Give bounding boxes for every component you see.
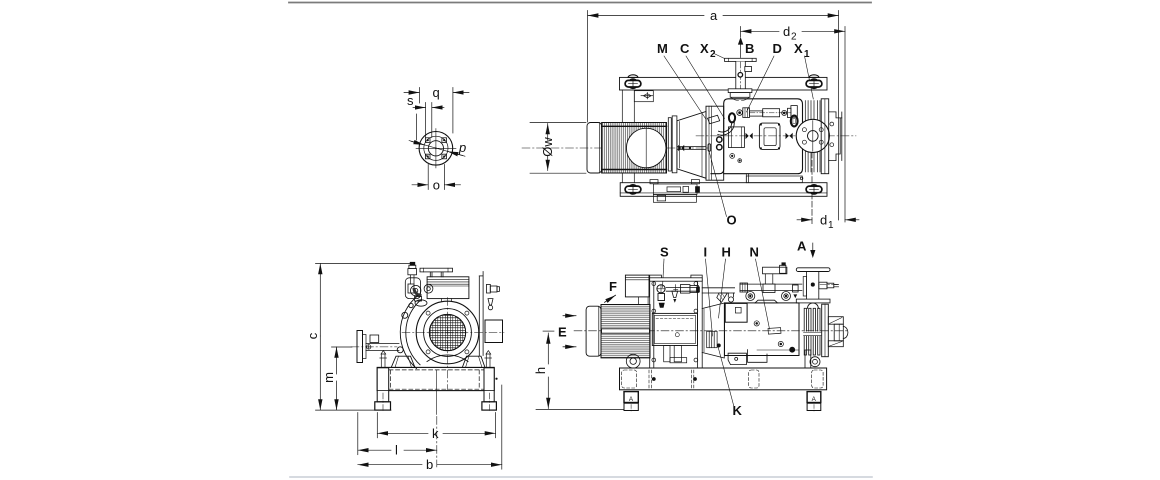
svg-text:p: p [458,140,466,155]
svg-text:F: F [609,279,617,294]
svg-text:I: I [704,245,708,260]
svg-text:A: A [812,396,817,403]
svg-text:M: M [657,41,668,56]
svg-text:H: H [722,245,731,260]
svg-text:d: d [783,24,790,39]
svg-text:E: E [558,324,567,339]
svg-text:a: a [710,8,718,23]
svg-text:h: h [533,367,548,374]
svg-text:b: b [426,457,433,472]
svg-text:1: 1 [828,220,834,231]
svg-text:Øw: Øw [540,137,555,157]
svg-text:O: O [727,213,737,228]
svg-text:X: X [794,41,803,56]
svg-text:N: N [750,245,759,260]
svg-text:K: K [733,403,743,418]
svg-text:2: 2 [710,49,716,60]
svg-text:k: k [432,426,439,441]
svg-text:B: B [745,41,754,56]
svg-text:C: C [680,41,690,56]
svg-text:q: q [433,85,440,100]
svg-text:o: o [433,177,440,192]
svg-text:A: A [629,396,634,403]
svg-text:d: d [820,213,827,228]
svg-text:m: m [321,372,336,383]
svg-text:S: S [660,245,669,260]
svg-text:A: A [797,239,807,254]
svg-text:l: l [395,443,398,458]
svg-text:X: X [700,41,709,56]
svg-text:D: D [773,41,782,56]
svg-text:s: s [407,93,414,108]
svg-text:c: c [305,332,320,339]
